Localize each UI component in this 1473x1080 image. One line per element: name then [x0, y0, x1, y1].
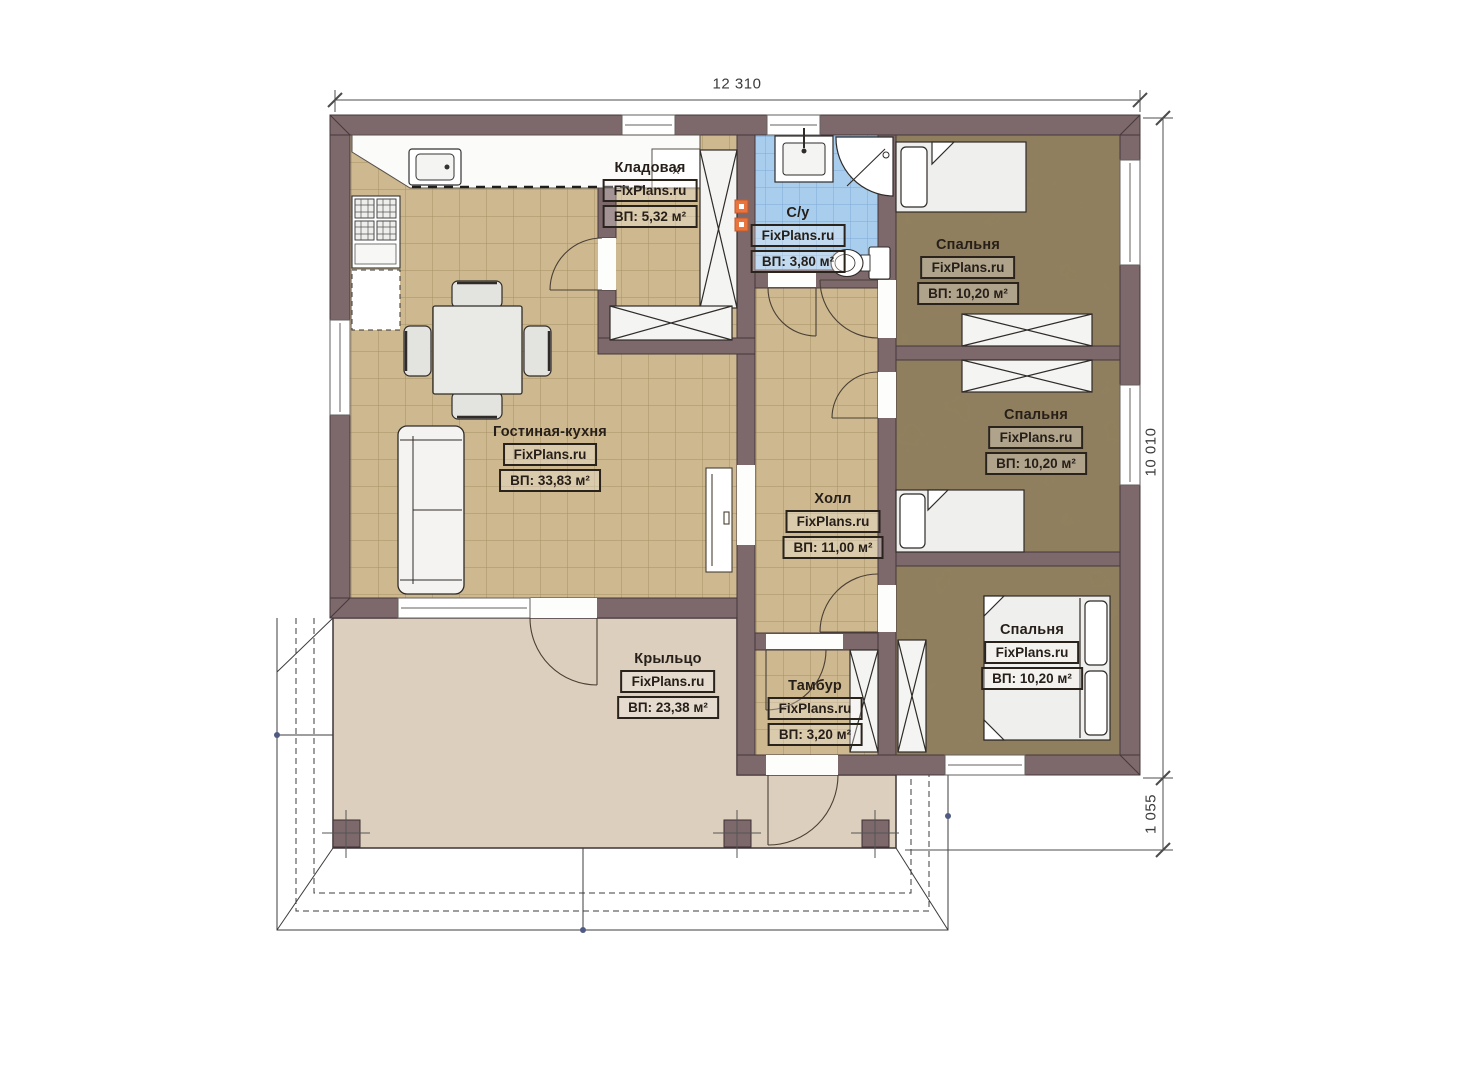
wardrobe	[700, 150, 737, 308]
window	[1120, 385, 1140, 485]
wardrobe	[898, 640, 926, 752]
kitchen-cabinet-dashed	[352, 270, 400, 330]
kitchen-x-marker: x	[673, 161, 680, 177]
wardrobe	[850, 650, 878, 752]
dimension-top: 12 310	[713, 76, 762, 93]
dimension-right-lower: 1 055	[1143, 794, 1160, 834]
window	[945, 755, 1025, 775]
wardrobe	[962, 314, 1092, 346]
sofa	[398, 426, 464, 594]
kitchen-sink	[409, 149, 461, 185]
dining-table	[433, 306, 522, 394]
kitchen-counter	[352, 135, 700, 188]
kitchen-stove	[352, 196, 400, 268]
chair	[452, 281, 502, 308]
floor-plan-canvas: 12 310 10 010 1 055 x Кладовая FixPlans.…	[0, 0, 1473, 1080]
window	[767, 115, 820, 135]
window	[622, 115, 675, 135]
wardrobe	[610, 306, 732, 340]
bed-single-top	[896, 142, 1026, 212]
window	[330, 320, 350, 415]
dimension-right: 10 010	[1143, 428, 1160, 477]
chair	[452, 392, 502, 419]
wardrobe	[962, 360, 1092, 392]
window	[398, 598, 530, 618]
chair	[524, 326, 551, 376]
bath-sink	[775, 128, 833, 182]
bed-single-middle	[896, 490, 1024, 552]
floor-plan-drawing	[0, 0, 1473, 1080]
bed-double-bottom	[984, 596, 1110, 740]
chair	[404, 326, 431, 376]
door-leaf-open	[706, 468, 732, 572]
window	[1120, 160, 1140, 265]
